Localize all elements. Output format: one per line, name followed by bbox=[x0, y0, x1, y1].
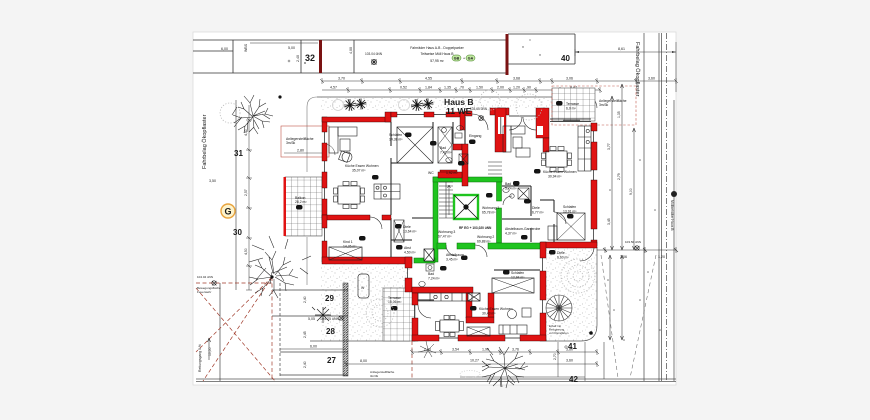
svg-text:3,45 m²: 3,45 m² bbox=[446, 258, 458, 262]
svg-text:3B: 3B bbox=[406, 133, 411, 137]
svg-text:6B: 6B bbox=[672, 192, 676, 196]
svg-text:Küche Essen Wohnen: Küche Essen Wohnen bbox=[345, 164, 379, 168]
svg-text:2B: 2B bbox=[550, 251, 555, 255]
svg-text:65,78 m²: 65,78 m² bbox=[482, 211, 496, 215]
svg-text:3B: 3B bbox=[373, 176, 378, 180]
svg-text:10,27: 10,27 bbox=[470, 359, 479, 363]
svg-text:14,38 m²: 14,38 m² bbox=[389, 138, 403, 142]
svg-text:104.04 üNN: 104.04 üNN bbox=[197, 275, 213, 279]
svg-text:3,70: 3,70 bbox=[338, 77, 345, 81]
svg-text:30: 30 bbox=[233, 228, 242, 237]
svg-text:9,00: 9,00 bbox=[629, 188, 633, 195]
svg-text:Kind 1: Kind 1 bbox=[343, 240, 353, 244]
svg-text:1,35: 1,35 bbox=[444, 86, 451, 90]
svg-text:4,55: 4,55 bbox=[425, 77, 432, 81]
svg-text:2B: 2B bbox=[471, 307, 476, 311]
svg-text:32: 32 bbox=[305, 53, 315, 63]
svg-text:6,0 m²: 6,0 m² bbox=[566, 107, 576, 111]
svg-text:10,00: 10,00 bbox=[208, 347, 212, 356]
svg-text:3,06: 3,06 bbox=[620, 255, 627, 259]
svg-text:4,50 m²: 4,50 m² bbox=[404, 251, 416, 255]
svg-text:Bad: Bad bbox=[440, 146, 446, 150]
svg-text:GA: GA bbox=[468, 57, 474, 61]
svg-text:40: 40 bbox=[561, 54, 570, 63]
svg-text:11 WE: 11 WE bbox=[446, 106, 472, 116]
svg-text:Wohnung 2: Wohnung 2 bbox=[477, 235, 494, 239]
svg-text:Müllbehälter Haus B: Müllbehälter Haus B bbox=[670, 200, 674, 231]
svg-text:,70: ,70 bbox=[459, 86, 464, 90]
svg-text:2,40: 2,40 bbox=[296, 55, 300, 62]
svg-text:13,64 m²: 13,64 m² bbox=[403, 230, 417, 234]
svg-text:Fahrbelag Ökopflaster: Fahrbelag Ökopflaster bbox=[634, 42, 641, 97]
svg-text:Abst: Abst bbox=[404, 246, 411, 250]
svg-text:1B: 1B bbox=[525, 200, 530, 204]
svg-text:5,74 m²: 5,74 m² bbox=[505, 187, 517, 191]
svg-text:5,05: 5,05 bbox=[308, 317, 315, 321]
svg-text:42: 42 bbox=[569, 375, 578, 384]
svg-text:2,57: 2,57 bbox=[244, 189, 248, 196]
svg-text:1,20: 1,20 bbox=[513, 86, 520, 90]
svg-text:4,50: 4,50 bbox=[244, 248, 248, 255]
svg-text:Schlafen: Schlafen bbox=[563, 205, 576, 209]
svg-text:3,54: 3,54 bbox=[452, 348, 459, 352]
svg-text:3,77: 3,77 bbox=[607, 143, 611, 150]
svg-text:2B: 2B bbox=[504, 271, 509, 275]
svg-text:6,60 m²: 6,60 m² bbox=[557, 256, 569, 260]
svg-text:Fahrräder Haus A-B - Doppelpar: Fahrräder Haus A-B - Doppelparker bbox=[410, 46, 464, 50]
svg-text:2B: 2B bbox=[462, 256, 467, 260]
svg-text:1,84: 1,84 bbox=[425, 86, 432, 90]
svg-text:57,95 m²: 57,95 m² bbox=[430, 59, 444, 63]
svg-text:4,57: 4,57 bbox=[330, 86, 337, 90]
svg-text:WC: WC bbox=[428, 171, 434, 175]
svg-text:103.04 üNN: 103.04 üNN bbox=[365, 52, 383, 56]
svg-text:2,45: 2,45 bbox=[303, 331, 307, 338]
svg-text:28,2 m²: 28,2 m² bbox=[295, 200, 307, 204]
svg-text:2,70: 2,70 bbox=[553, 353, 557, 360]
svg-text:3B: 3B bbox=[397, 246, 402, 250]
svg-text:6B: 6B bbox=[487, 194, 492, 198]
svg-text:1,20: 1,20 bbox=[658, 255, 665, 259]
svg-text:3m/3k: 3m/3k bbox=[599, 103, 609, 107]
svg-text:3,60: 3,60 bbox=[566, 359, 573, 363]
svg-text:3B: 3B bbox=[459, 162, 464, 166]
svg-text:14,26 m²: 14,26 m² bbox=[343, 245, 357, 249]
svg-text:15,06 m²: 15,06 m² bbox=[388, 300, 402, 304]
svg-text:Bad: Bad bbox=[505, 182, 511, 186]
svg-text:G: G bbox=[224, 207, 231, 217]
svg-text:28: 28 bbox=[326, 327, 335, 336]
svg-text:31: 31 bbox=[234, 149, 243, 158]
svg-text:30,94 m²: 30,94 m² bbox=[548, 175, 562, 179]
svg-text:6,00: 6,00 bbox=[221, 47, 228, 51]
svg-text:Feuerwehr: Feuerwehr bbox=[197, 290, 211, 294]
svg-text:7,24 m²: 7,24 m² bbox=[428, 277, 440, 281]
svg-text:3B: 3B bbox=[360, 237, 365, 241]
svg-text:3,76: 3,76 bbox=[512, 348, 519, 352]
svg-text:6,77 m²: 6,77 m² bbox=[532, 211, 544, 215]
svg-text:WBS: WBS bbox=[244, 43, 248, 52]
svg-text:Wohnung 3: Wohnung 3 bbox=[438, 230, 455, 234]
svg-text:3,60: 3,60 bbox=[648, 77, 655, 81]
svg-text:3,45: 3,45 bbox=[607, 218, 611, 225]
svg-text:7,42 m²: 7,42 m² bbox=[440, 151, 452, 155]
svg-text:Wohnung 1: Wohnung 1 bbox=[482, 206, 499, 210]
svg-text:GB: GB bbox=[454, 57, 460, 61]
svg-text:Schlafen: Schlafen bbox=[511, 271, 524, 275]
svg-text:2,80: 2,80 bbox=[297, 149, 304, 153]
svg-text:Küche Essen Wohnen: Küche Essen Wohnen bbox=[543, 170, 577, 174]
svg-text:4,37 m²: 4,37 m² bbox=[505, 232, 517, 236]
svg-text:3B: 3B bbox=[396, 225, 401, 229]
svg-text:2,00: 2,00 bbox=[497, 86, 504, 90]
svg-text:2,79: 2,79 bbox=[617, 173, 621, 180]
svg-text:1B: 1B bbox=[557, 102, 562, 106]
svg-text:8,61: 8,61 bbox=[618, 47, 625, 51]
svg-text:Eingang: Eingang bbox=[469, 134, 482, 138]
svg-text:Diele: Diele bbox=[403, 225, 411, 229]
svg-text:Schlafen: Schlafen bbox=[389, 133, 402, 137]
svg-text:Diele: Diele bbox=[532, 206, 540, 210]
svg-text:von Kleingärten: von Kleingärten bbox=[549, 331, 569, 335]
svg-text:2B: 2B bbox=[441, 267, 446, 271]
svg-text:3B: 3B bbox=[297, 206, 302, 210]
svg-text:1B: 1B bbox=[522, 236, 527, 240]
svg-text:12,94 m²: 12,94 m² bbox=[511, 276, 525, 280]
svg-text:1,35: 1,35 bbox=[617, 111, 621, 118]
svg-text:Teilweise Müll Haus B: Teilweise Müll Haus B bbox=[421, 52, 455, 56]
svg-text:,90: ,90 bbox=[526, 86, 531, 90]
svg-text:1,50: 1,50 bbox=[476, 86, 483, 90]
svg-text:6B: 6B bbox=[470, 140, 475, 144]
svg-text:3m/3k: 3m/3k bbox=[370, 374, 379, 378]
svg-text:13,91 m²: 13,91 m² bbox=[563, 210, 577, 214]
svg-text:Terrasse: Terrasse bbox=[566, 102, 579, 106]
svg-text:1,92 m²: 1,92 m² bbox=[446, 171, 458, 175]
svg-text:Bad: Bad bbox=[428, 272, 434, 276]
svg-text:3,50: 3,50 bbox=[209, 179, 216, 183]
svg-text:Küche Essen Wohnen: Küche Essen Wohnen bbox=[479, 307, 513, 311]
svg-text:4,00: 4,00 bbox=[349, 47, 353, 54]
svg-text:103.50 üNN: 103.50 üNN bbox=[625, 240, 641, 244]
svg-text:41: 41 bbox=[568, 342, 577, 351]
svg-text:Fahrbelag Ökopflaster: Fahrbelag Ökopflaster bbox=[201, 114, 208, 169]
svg-text:Abstellraum-Garderobe: Abstellraum-Garderobe bbox=[505, 227, 540, 231]
svg-text:0,52: 0,52 bbox=[400, 86, 407, 90]
svg-text:30,43 m²: 30,43 m² bbox=[482, 312, 496, 316]
svg-text:RF EG + 103,020 üNN: RF EG + 103,020 üNN bbox=[459, 226, 492, 230]
svg-text:2,40: 2,40 bbox=[303, 296, 307, 303]
svg-text:1B: 1B bbox=[568, 215, 573, 219]
svg-text:3,68: 3,68 bbox=[513, 77, 520, 81]
svg-text:3m/3k: 3m/3k bbox=[286, 141, 296, 145]
svg-text:6,00: 6,00 bbox=[310, 345, 317, 349]
svg-text:29: 29 bbox=[325, 294, 334, 303]
svg-text:8,00: 8,00 bbox=[360, 359, 367, 363]
svg-text:5,00: 5,00 bbox=[288, 46, 295, 50]
svg-text:69,88 m²: 69,88 m² bbox=[477, 240, 491, 244]
svg-text:27: 27 bbox=[327, 356, 336, 365]
svg-text:Diele: Diele bbox=[557, 251, 565, 255]
svg-text:3B: 3B bbox=[431, 142, 436, 146]
svg-text:1B: 1B bbox=[514, 182, 519, 186]
svg-text:1B: 1B bbox=[535, 170, 540, 174]
svg-text:35,07 m²: 35,07 m² bbox=[352, 169, 366, 173]
svg-text:2,40: 2,40 bbox=[303, 361, 307, 368]
svg-text:3,06: 3,06 bbox=[566, 77, 573, 81]
svg-text:Rettungsgang 5 %: Rettungsgang 5 % bbox=[198, 344, 202, 372]
svg-text:67,47 m²: 67,47 m² bbox=[438, 235, 452, 239]
